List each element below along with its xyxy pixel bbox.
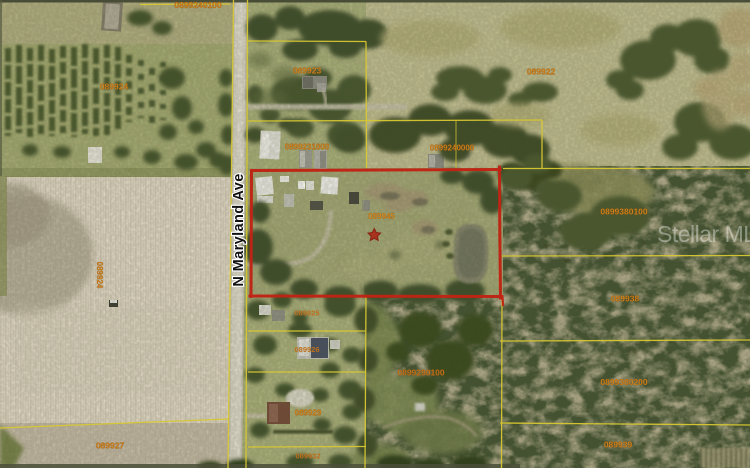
svg-text:089945: 089945 [368, 212, 395, 221]
svg-text:0899380200: 0899380200 [600, 377, 648, 387]
svg-text:089932: 089932 [295, 452, 320, 461]
svg-text:089922: 089922 [527, 67, 556, 77]
svg-text:089939: 089939 [604, 440, 633, 450]
svg-text:0899240000: 0899240000 [430, 144, 475, 153]
svg-text:089924: 089924 [95, 262, 104, 289]
svg-text:089926: 089926 [294, 345, 319, 354]
svg-text:Stellar MLS: Stellar MLS [657, 221, 750, 247]
svg-text:0899290100: 0899290100 [397, 368, 445, 378]
svg-text:089938: 089938 [611, 294, 640, 304]
svg-text:089925: 089925 [294, 309, 319, 318]
svg-text:089923: 089923 [293, 66, 322, 76]
svg-text:089924: 089924 [100, 82, 129, 92]
svg-text:089927: 089927 [96, 441, 125, 451]
svg-text:089929: 089929 [295, 409, 322, 418]
svg-text:0899231000: 0899231000 [285, 143, 330, 152]
svg-text:0899380100: 0899380100 [600, 207, 648, 217]
svg-text:0899240100: 0899240100 [174, 0, 222, 10]
svg-text:N Maryland Ave: N Maryland Ave [231, 173, 247, 286]
